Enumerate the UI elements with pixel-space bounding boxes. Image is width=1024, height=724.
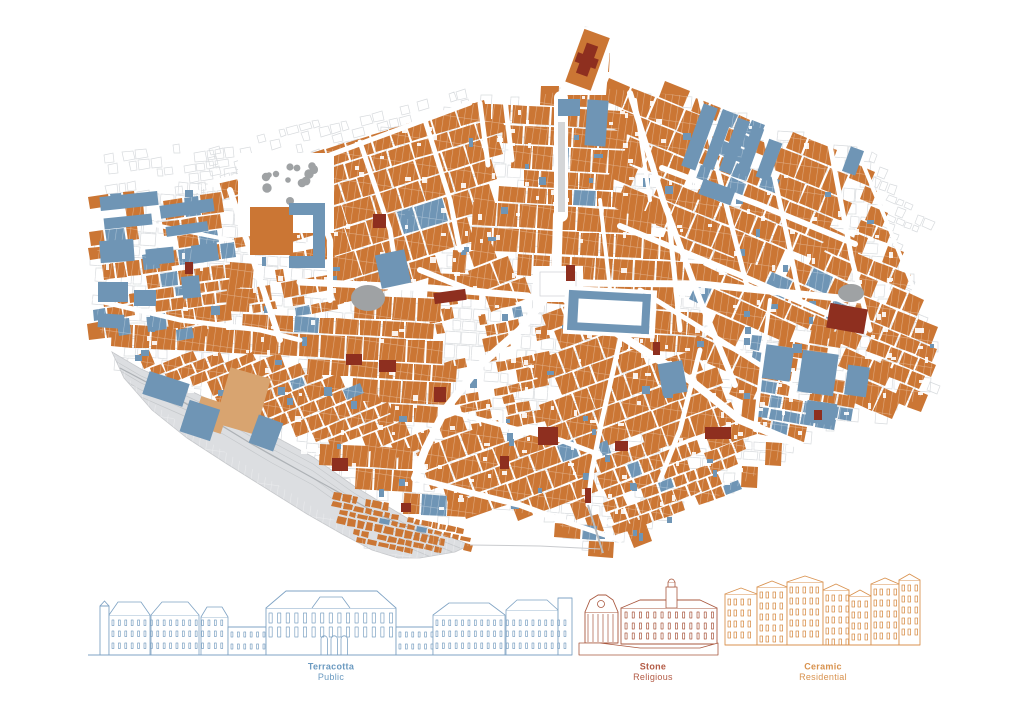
svg-text:Terracotta: Terracotta xyxy=(308,662,355,672)
svg-text:Stone: Stone xyxy=(640,662,667,672)
svg-text:Ceramic: Ceramic xyxy=(804,662,842,672)
svg-text:Residential: Residential xyxy=(799,672,847,682)
svg-text:Religious: Religious xyxy=(633,672,673,682)
svg-text:Public: Public xyxy=(318,672,345,682)
